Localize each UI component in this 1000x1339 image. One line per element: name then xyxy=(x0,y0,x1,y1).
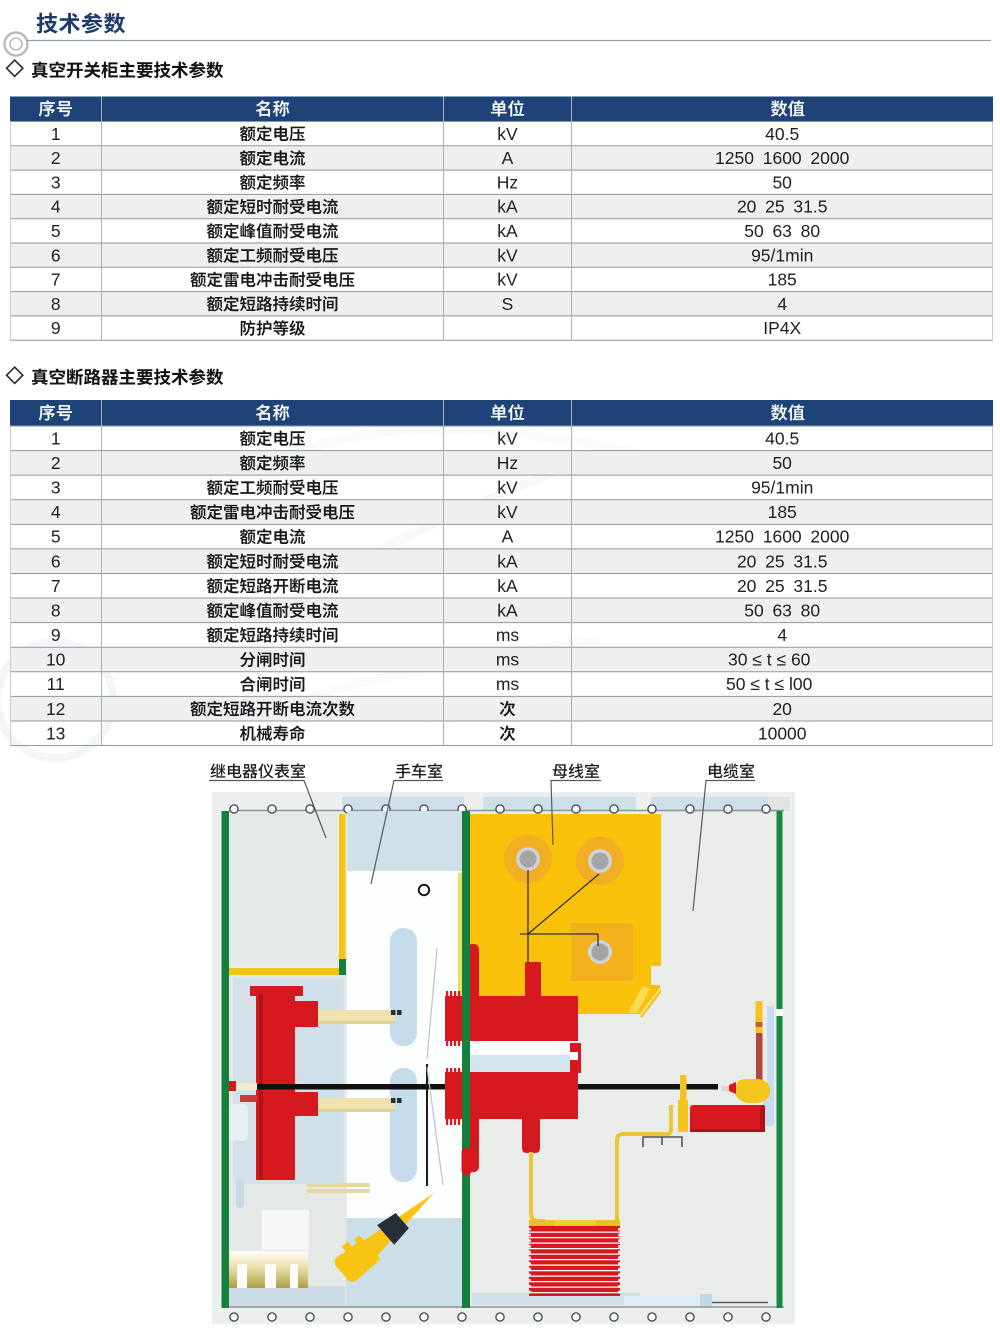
svg-text:2: 2 xyxy=(51,148,61,168)
svg-text:kA: kA xyxy=(497,551,518,571)
svg-text:kV: kV xyxy=(497,428,518,448)
svg-text:A: A xyxy=(502,148,514,168)
svg-text:S: S xyxy=(502,294,514,314)
svg-text:11: 11 xyxy=(47,674,65,694)
svg-text:5: 5 xyxy=(51,221,61,241)
svg-text:7: 7 xyxy=(51,576,61,596)
svg-text:kV: kV xyxy=(497,502,518,522)
svg-text:1: 1 xyxy=(51,428,61,448)
svg-text:50 63 80: 50 63 80 xyxy=(744,601,820,621)
svg-text:9: 9 xyxy=(51,318,61,338)
svg-text:40.5: 40.5 xyxy=(765,124,799,144)
svg-text:3: 3 xyxy=(51,172,61,192)
svg-text:95/1min: 95/1min xyxy=(751,245,813,265)
svg-text:20 25 31.5: 20 25 31.5 xyxy=(737,197,828,217)
svg-text:30 ≤ t ≤ 60: 30 ≤ t ≤ 60 xyxy=(728,650,811,670)
svg-text:50 63 80: 50 63 80 xyxy=(744,221,820,241)
svg-text:2: 2 xyxy=(51,453,61,473)
svg-text:3: 3 xyxy=(51,478,61,498)
svg-text:kA: kA xyxy=(497,601,518,621)
svg-text:7: 7 xyxy=(51,270,61,290)
svg-text:kA: kA xyxy=(497,221,518,241)
svg-text:50 ≤ t ≤ l00: 50 ≤ t ≤ l00 xyxy=(726,674,813,694)
svg-text:10: 10 xyxy=(46,650,66,670)
svg-text:kA: kA xyxy=(497,197,518,217)
svg-text:12: 12 xyxy=(46,699,65,719)
svg-text:kV: kV xyxy=(497,270,518,290)
svg-text:ms: ms xyxy=(496,674,520,694)
svg-text:ms: ms xyxy=(496,625,520,645)
svg-text:9: 9 xyxy=(51,625,61,645)
svg-text:95/1min: 95/1min xyxy=(751,478,813,498)
svg-text:5: 5 xyxy=(51,527,61,547)
svg-text:8: 8 xyxy=(51,601,61,621)
svg-text:kV: kV xyxy=(497,124,518,144)
svg-text:4: 4 xyxy=(777,294,787,314)
svg-text:1: 1 xyxy=(51,124,61,144)
svg-text:185: 185 xyxy=(768,270,797,290)
svg-text:IP4X: IP4X xyxy=(763,318,801,338)
svg-text:4: 4 xyxy=(51,197,61,217)
svg-text:4: 4 xyxy=(777,625,787,645)
svg-text:Hz: Hz xyxy=(497,172,518,192)
svg-text:1250 1600 2000: 1250 1600 2000 xyxy=(715,148,850,168)
svg-text:ms: ms xyxy=(496,650,520,670)
svg-text:8: 8 xyxy=(51,294,61,314)
svg-text:A: A xyxy=(502,527,514,547)
svg-text:4: 4 xyxy=(51,502,61,522)
svg-text:20 25 31.5: 20 25 31.5 xyxy=(737,576,828,596)
svg-text:40.5: 40.5 xyxy=(765,428,799,448)
svg-text:50: 50 xyxy=(772,453,792,473)
svg-text:10000: 10000 xyxy=(758,723,807,743)
svg-text:kA: kA xyxy=(497,576,518,596)
svg-text:20 25 31.5: 20 25 31.5 xyxy=(737,551,828,571)
svg-text:kV: kV xyxy=(497,478,518,498)
svg-text:13: 13 xyxy=(46,723,65,743)
svg-text:kV: kV xyxy=(497,245,518,265)
svg-text:20: 20 xyxy=(772,699,792,719)
svg-text:6: 6 xyxy=(51,551,61,571)
svg-text:1250 1600 2000: 1250 1600 2000 xyxy=(715,527,850,547)
svg-text:185: 185 xyxy=(768,502,797,522)
svg-text:50: 50 xyxy=(772,172,792,192)
svg-text:Hz: Hz xyxy=(497,453,518,473)
svg-text:6: 6 xyxy=(51,245,61,265)
